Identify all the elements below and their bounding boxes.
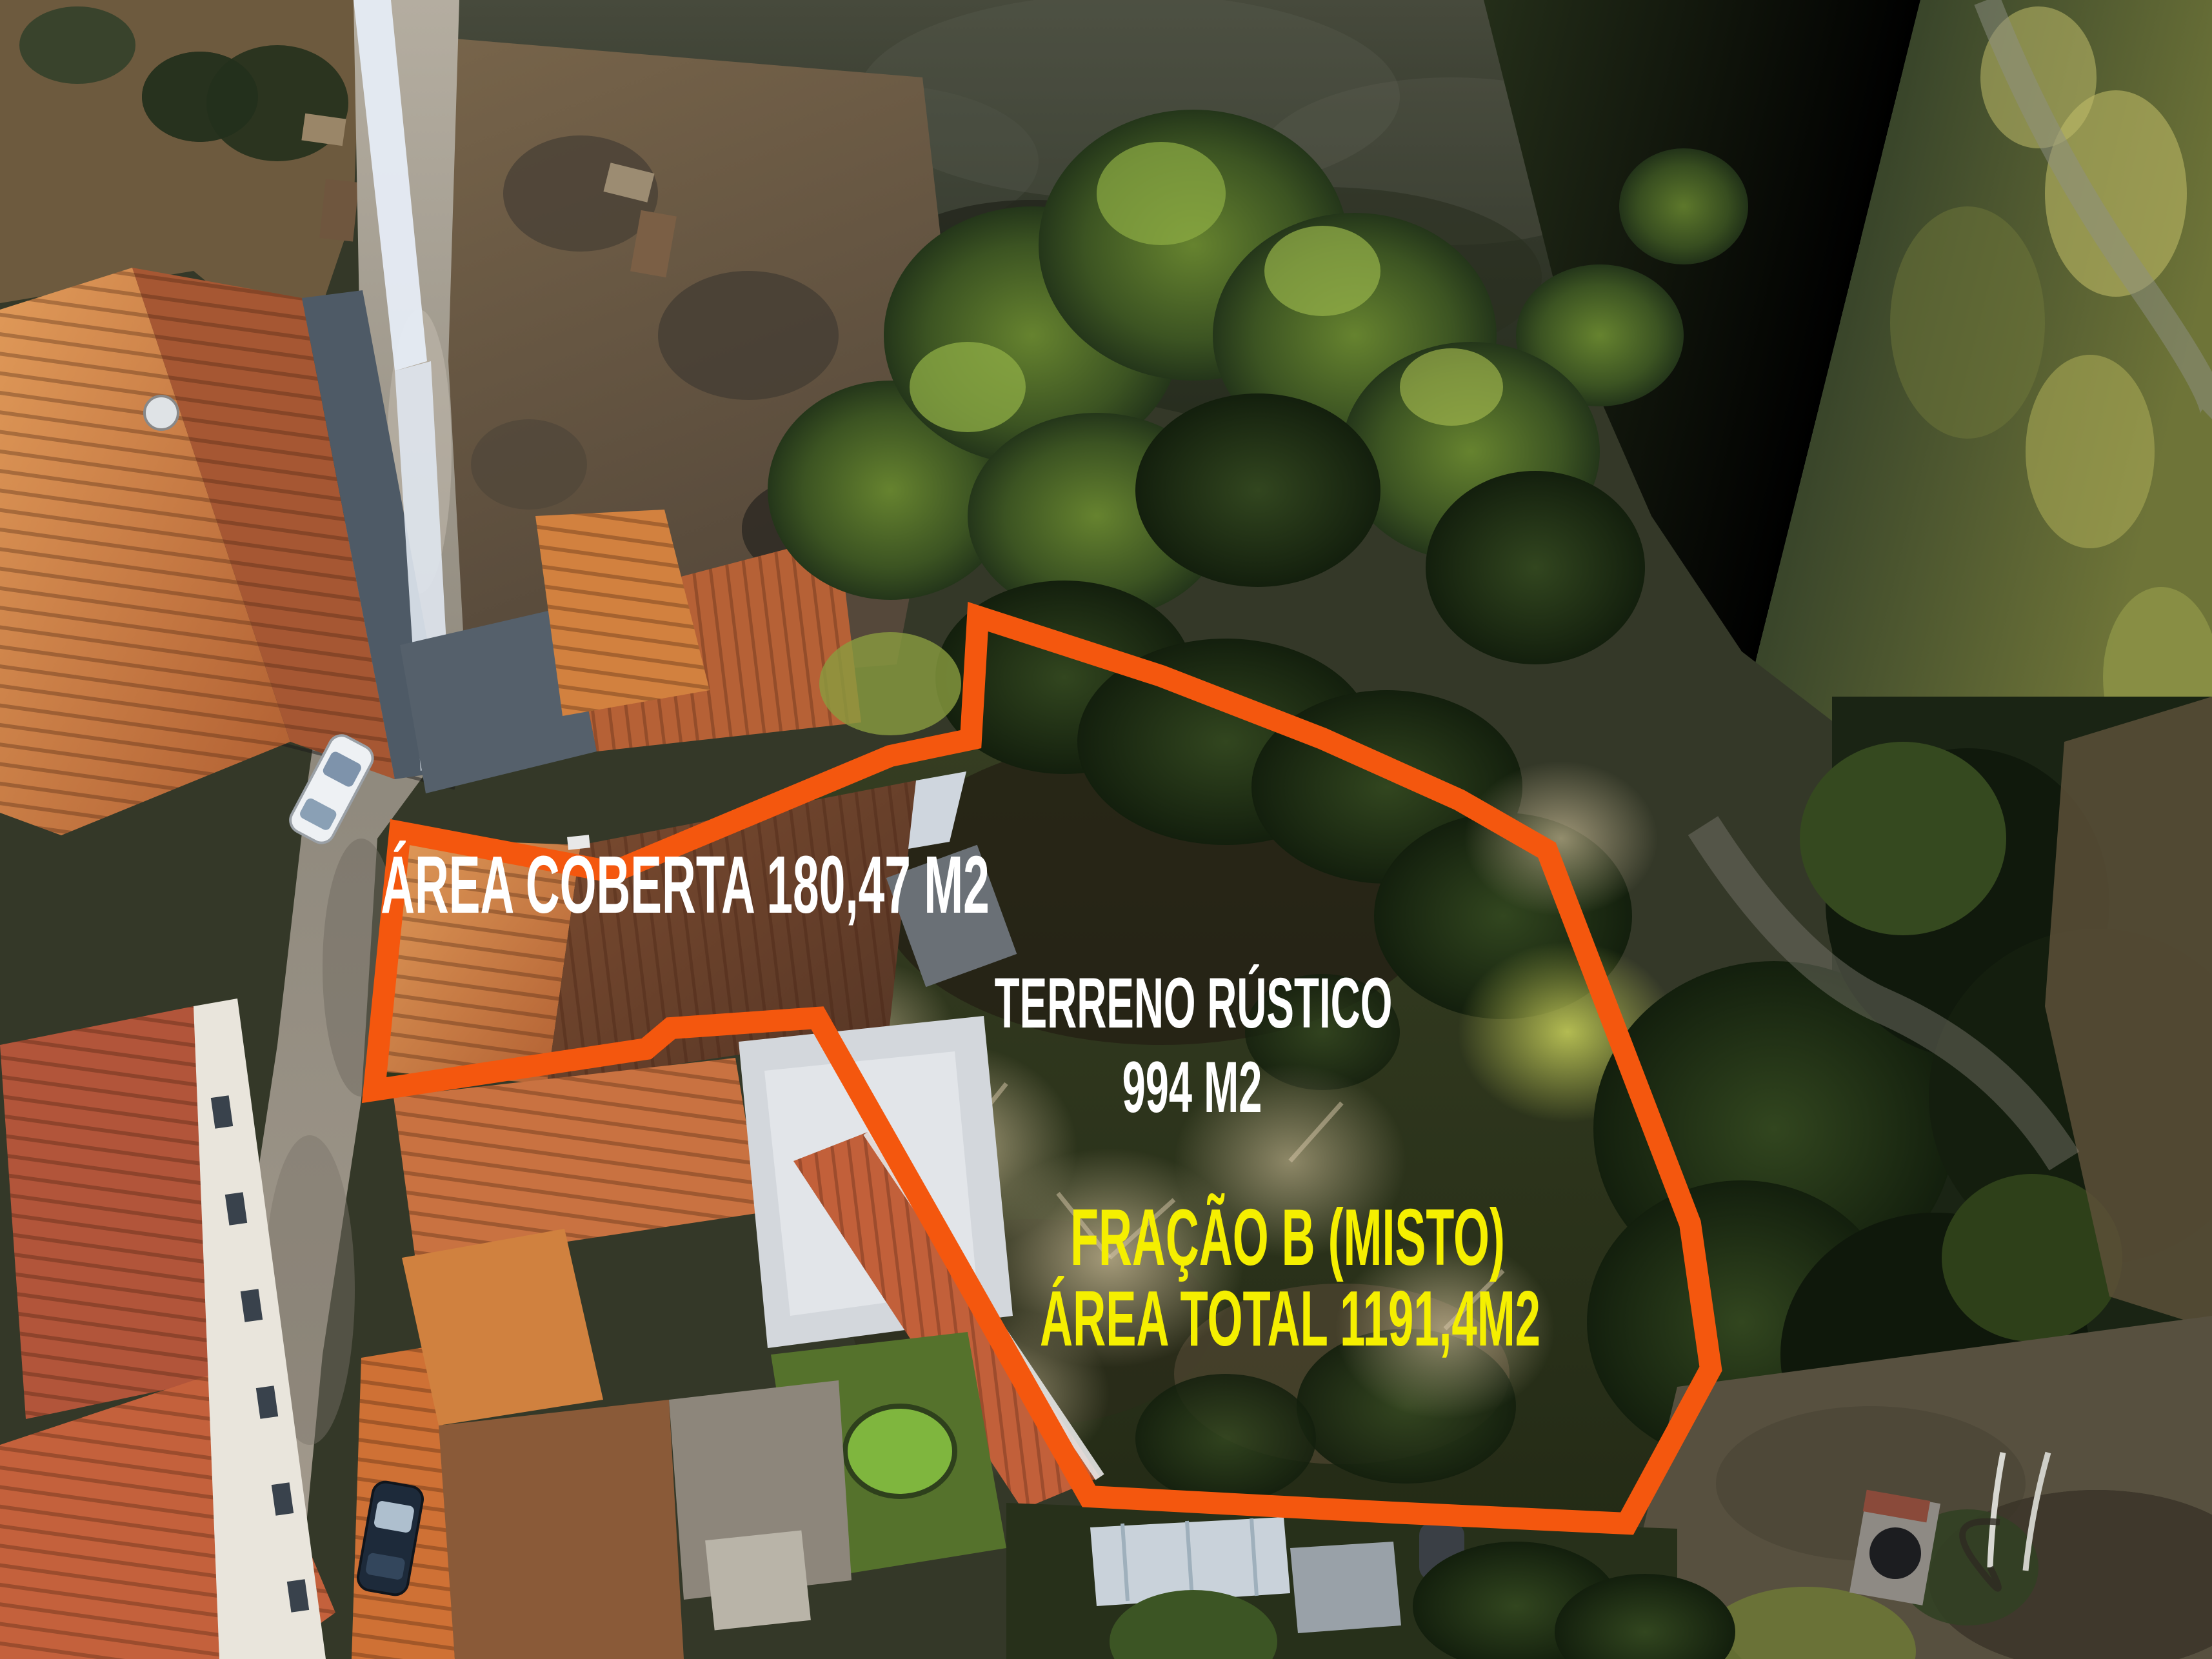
label-terreno-rustico-text: TERRENO RÚSTICO (995, 968, 1393, 1039)
label-area-total-text: ÁREA TOTAL 1191,4M2 (1040, 1279, 1540, 1358)
label-area-coberta: ÁREA COBERTA 180,47 M2 (161, 844, 1210, 926)
label-area-total: ÁREA TOTAL 1191,4M2 (859, 1279, 1722, 1358)
label-area-coberta-text: ÁREA COBERTA 180,47 M2 (381, 844, 990, 926)
label-fracao-text: FRAÇÃO B (MISTO) (1070, 1198, 1505, 1278)
aerial-photo: ÁREA COBERTA 180,47 M2 TERRENO RÚSTICO 9… (0, 0, 2212, 1659)
label-terreno-area: 994 M2 (1071, 1051, 1313, 1124)
label-fracao: FRAÇÃO B (MISTO) (913, 1198, 1662, 1278)
label-terreno-rustico: TERRENO RÚSTICO (850, 968, 1536, 1039)
label-terreno-area-text: 994 M2 (1122, 1051, 1262, 1124)
aerial-photo-art (0, 0, 2212, 1659)
